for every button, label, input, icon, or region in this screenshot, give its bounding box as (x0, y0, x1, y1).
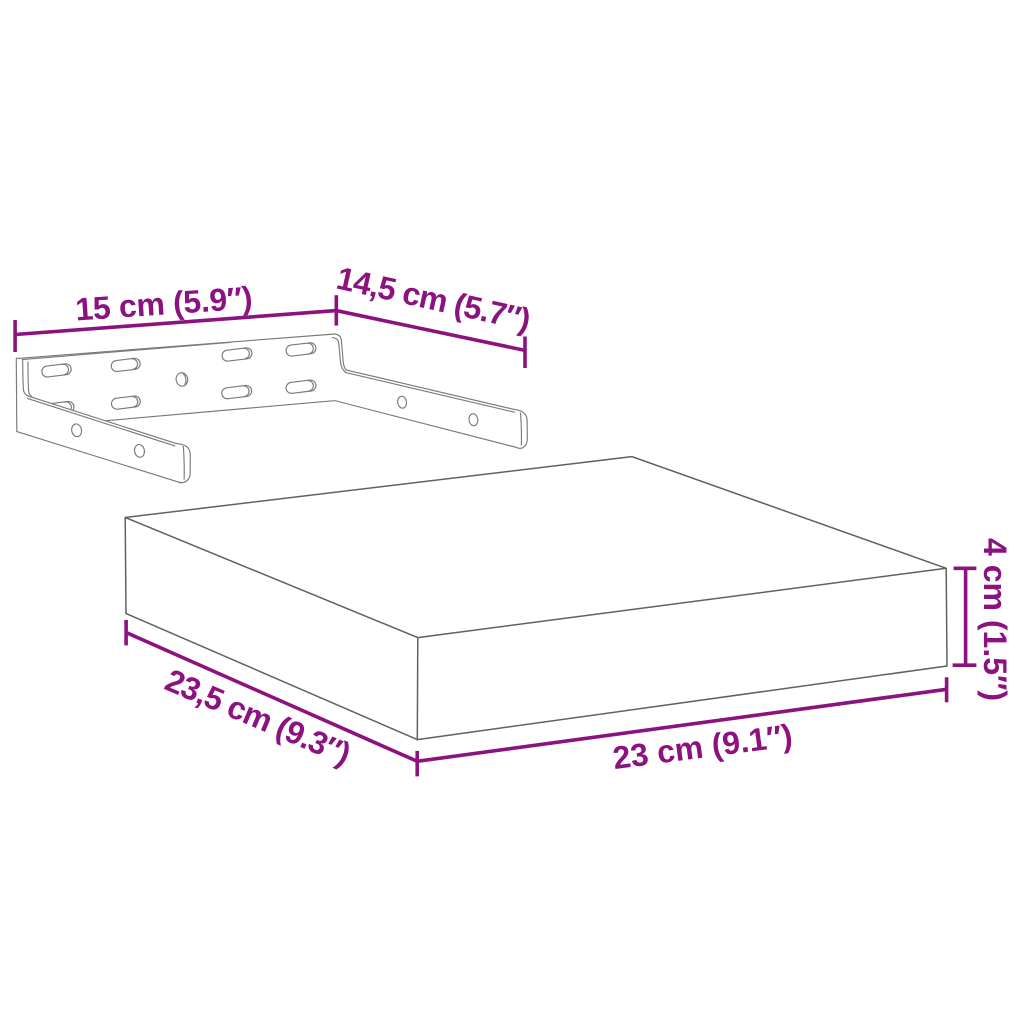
svg-text:4 cm (1.5″): 4 cm (1.5″) (977, 538, 1013, 701)
